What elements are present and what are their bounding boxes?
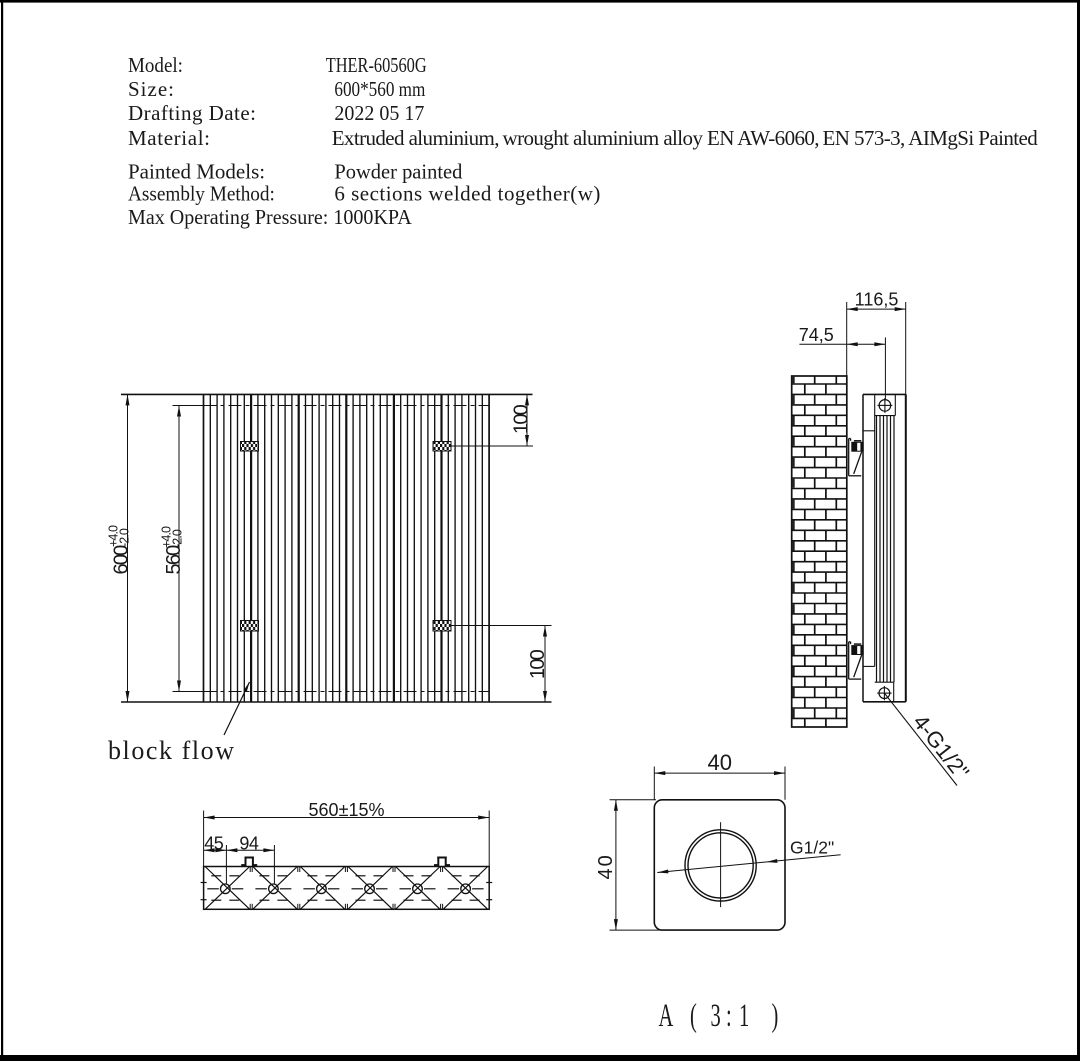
svg-text:94: 94 [239,834,259,854]
svg-text:600*560 mm: 600*560 mm [334,78,425,101]
svg-text:Model:: Model: [128,54,183,77]
svg-text:6 sections welded together(w): 6 sections welded together(w) [334,182,600,206]
svg-text:Painted Models:: Painted Models: [128,160,265,184]
svg-text:): ) [772,997,779,1033]
svg-text:1: 1 [739,997,749,1033]
svg-text:560±15%: 560±15% [309,800,385,820]
svg-text:G1/2": G1/2" [790,838,834,858]
svg-text:Extruded aluminium, wrought al: Extruded aluminium, wrought aluminium al… [332,126,1038,150]
svg-text:-2.0: -2.0 [117,528,131,547]
svg-text:Assembly Method:: Assembly Method: [128,183,275,206]
svg-text:Material:: Material: [128,126,210,150]
svg-text:3: 3 [711,997,721,1033]
svg-text:560: 560 [163,545,185,575]
svg-text:-2.0: -2.0 [170,529,184,548]
svg-text:45: 45 [204,834,224,854]
svg-text:116,5: 116,5 [855,290,899,310]
svg-text::: : [726,997,732,1033]
svg-text:THER-60560G: THER-60560G [326,54,427,77]
svg-text:74,5: 74,5 [799,325,834,345]
svg-text:40: 40 [708,750,732,775]
svg-text:100: 100 [511,404,533,434]
svg-text:(: ( [690,997,697,1033]
svg-text:600: 600 [110,545,132,575]
svg-text:Size:: Size: [128,77,174,101]
svg-text:block flow: block flow [108,736,234,765]
svg-text:Powder painted: Powder painted [334,161,463,183]
svg-text:Drafting Date:: Drafting Date: [128,101,256,125]
svg-text:Max Operating Pressure: 1000KP: Max Operating Pressure: 1000KPA [128,207,412,229]
svg-text:100: 100 [527,649,549,679]
svg-text:40: 40 [595,853,617,879]
svg-text:2022 05 17: 2022 05 17 [334,103,424,126]
svg-text:A: A [659,997,674,1033]
